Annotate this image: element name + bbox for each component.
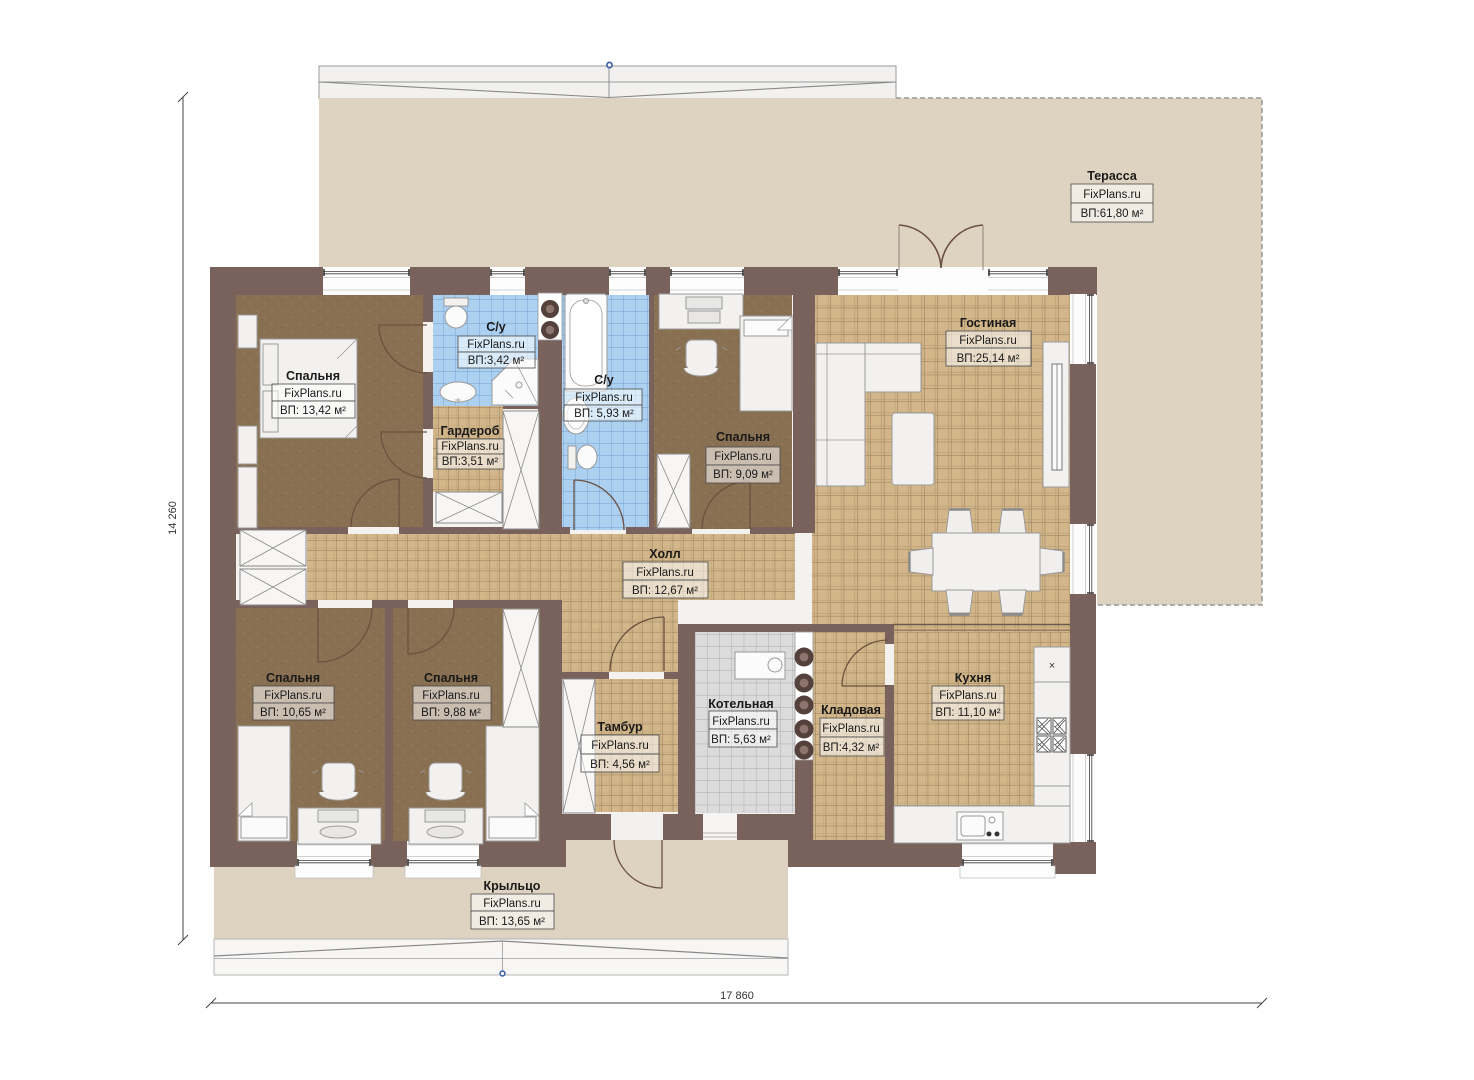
svg-text:Гостиная: Гостиная [960, 316, 1017, 330]
svg-text:FixPlans.ru: FixPlans.ru [939, 690, 997, 702]
svg-text:Тамбур: Тамбур [597, 720, 643, 734]
svg-text:Кухня: Кухня [955, 671, 992, 685]
svg-text:ВП:61,80 м²: ВП:61,80 м² [1081, 208, 1144, 220]
svg-text:Терасса: Терасса [1087, 169, 1138, 183]
svg-text:Спальня: Спальня [266, 671, 320, 685]
svg-text:Кладовая: Кладовая [821, 703, 881, 717]
svg-text:FixPlans.ru: FixPlans.ru [714, 451, 772, 463]
svg-text:17 860: 17 860 [720, 990, 754, 1002]
svg-text:FixPlans.ru: FixPlans.ru [959, 335, 1017, 347]
svg-text:FixPlans.ru: FixPlans.ru [591, 740, 649, 752]
svg-text:FixPlans.ru: FixPlans.ru [575, 392, 633, 404]
svg-text:ВП:4,32 м²: ВП:4,32 м² [823, 742, 880, 754]
svg-text:ВП: 4,56 м²: ВП: 4,56 м² [590, 759, 650, 771]
svg-text:Спальня: Спальня [424, 671, 478, 685]
svg-text:FixPlans.ru: FixPlans.ru [636, 567, 694, 579]
svg-text:ВП: 9,88 м²: ВП: 9,88 м² [421, 707, 481, 719]
svg-text:FixPlans.ru: FixPlans.ru [284, 388, 342, 400]
svg-text:FixPlans.ru: FixPlans.ru [1083, 189, 1141, 201]
svg-text:ВП: 10,65 м²: ВП: 10,65 м² [260, 707, 326, 719]
svg-text:ВП:3,51 м²: ВП:3,51 м² [442, 456, 499, 468]
svg-text:ВП: 13,42 м²: ВП: 13,42 м² [280, 405, 346, 417]
svg-text:Спальня: Спальня [286, 369, 340, 383]
svg-text:Котельная: Котельная [708, 697, 773, 711]
svg-text:FixPlans.ru: FixPlans.ru [264, 690, 322, 702]
svg-text:ВП:25,14 м²: ВП:25,14 м² [957, 353, 1020, 365]
svg-text:ВП: 5,63 м²: ВП: 5,63 м² [711, 734, 771, 746]
svg-text:Спальня: Спальня [716, 430, 770, 444]
svg-text:ВП: 9,09 м²: ВП: 9,09 м² [713, 469, 773, 481]
svg-text:С/у: С/у [486, 320, 506, 334]
svg-text:14 260: 14 260 [167, 501, 179, 535]
svg-text:FixPlans.ru: FixPlans.ru [483, 898, 541, 910]
svg-text:Холл: Холл [649, 547, 680, 561]
svg-text:ВП: 11,10 м²: ВП: 11,10 м² [935, 707, 1000, 719]
svg-text:Гардероб: Гардероб [440, 424, 499, 438]
svg-text:FixPlans.ru: FixPlans.ru [422, 690, 480, 702]
svg-text:×: × [1049, 660, 1055, 672]
svg-text:FixPlans.ru: FixPlans.ru [822, 723, 880, 735]
svg-text:FixPlans.ru: FixPlans.ru [467, 339, 525, 351]
svg-text:ВП:3,42 м²: ВП:3,42 м² [468, 355, 525, 367]
svg-text:ВП: 5,93 м²: ВП: 5,93 м² [574, 408, 634, 420]
svg-text:FixPlans.ru: FixPlans.ru [441, 441, 499, 453]
svg-text:С/у: С/у [594, 373, 614, 387]
svg-text:FixPlans.ru: FixPlans.ru [712, 716, 770, 728]
svg-text:Крыльцо: Крыльцо [484, 879, 541, 893]
svg-text:ВП: 12,67 м²: ВП: 12,67 м² [632, 585, 698, 597]
svg-text:ВП: 13,65 м²: ВП: 13,65 м² [479, 916, 545, 928]
